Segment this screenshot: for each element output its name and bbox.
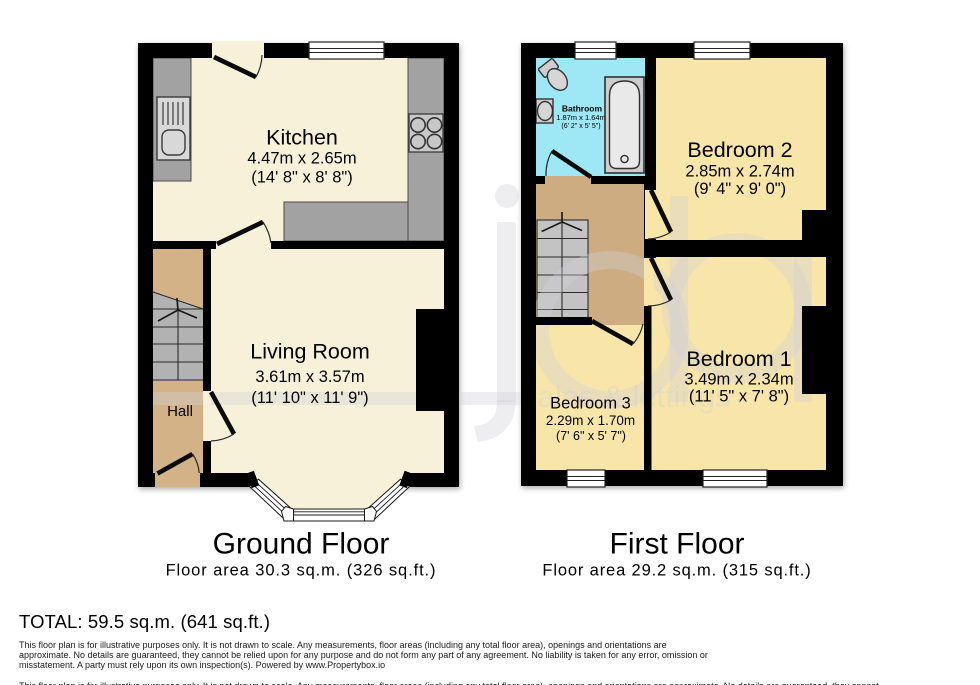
svg-text:misstatement. A party must rel: misstatement. A party must rely upon its…: [19, 660, 385, 670]
svg-text:(9' 4" x 9' 0"): (9' 4" x 9' 0"): [694, 180, 786, 198]
svg-text:First Floor: First Floor: [610, 528, 745, 561]
svg-text:TOTAL: 59.5 sq.m. (641 sq.ft.): TOTAL: 59.5 sq.m. (641 sq.ft.): [19, 611, 270, 632]
svg-text:Kitchen: Kitchen: [266, 126, 338, 150]
svg-text:2.29m x 1.70m: 2.29m x 1.70m: [546, 413, 635, 428]
svg-text:4.47m x 2.65m: 4.47m x 2.65m: [247, 150, 356, 168]
svg-text:Floor area 29.2 sq.m. (315 sq.: Floor area 29.2 sq.m. (315 sq.ft.): [542, 562, 811, 580]
svg-text:Floor area 30.3 sq.m. (326 sq.: Floor area 30.3 sq.m. (326 sq.ft.): [166, 562, 437, 580]
svg-text:Bedroom 1: Bedroom 1: [686, 347, 791, 371]
svg-text:Bedroom 2: Bedroom 2: [687, 138, 792, 162]
svg-text:(11' 10" x 11' 9"): (11' 10" x 11' 9"): [251, 389, 368, 407]
svg-text:(11' 5" x 7' 8"): (11' 5" x 7' 8"): [689, 388, 789, 406]
svg-text:(14' 8" x 8' 8"): (14' 8" x 8' 8"): [251, 169, 352, 187]
svg-text:1.87m x 1.64m: 1.87m x 1.64m: [556, 113, 606, 122]
svg-text:Hall: Hall: [167, 403, 193, 420]
svg-text:Bedroom 3: Bedroom 3: [550, 395, 631, 413]
svg-text:3.61m x 3.57m: 3.61m x 3.57m: [255, 368, 364, 386]
svg-text:This floor plan is for illustr: This floor plan is for illustrative purp…: [19, 681, 879, 685]
svg-text:Bathroom: Bathroom: [562, 104, 603, 114]
svg-text:Living Room: Living Room: [250, 340, 370, 364]
svg-text:Ground Floor: Ground Floor: [213, 528, 390, 561]
svg-text:(6' 2" x 5' 5"): (6' 2" x 5' 5"): [561, 123, 600, 130]
svg-text:(7' 6" x 5' 7"): (7' 6" x 5' 7"): [556, 429, 626, 443]
svg-text:This floor plan is for illustr: This floor plan is for illustrative purp…: [19, 640, 667, 650]
svg-text:3.49m x 2.34m: 3.49m x 2.34m: [684, 371, 793, 389]
svg-text:2.85m x 2.74m: 2.85m x 2.74m: [685, 163, 794, 181]
svg-text:approximate. No details are gu: approximate. No details are guaranteed, …: [19, 650, 708, 660]
